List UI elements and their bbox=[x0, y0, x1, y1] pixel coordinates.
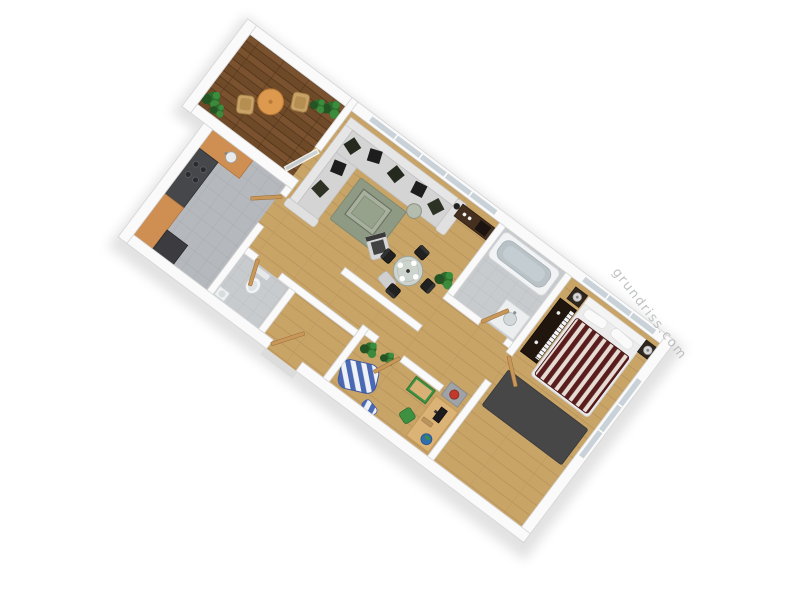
balcony-chair bbox=[236, 95, 255, 115]
apartment-scene bbox=[84, 15, 685, 560]
floorplan-render: grundriss.com bbox=[0, 0, 800, 600]
balcony-chair bbox=[290, 91, 310, 112]
floorplan-svg: grundriss.com bbox=[0, 0, 800, 600]
